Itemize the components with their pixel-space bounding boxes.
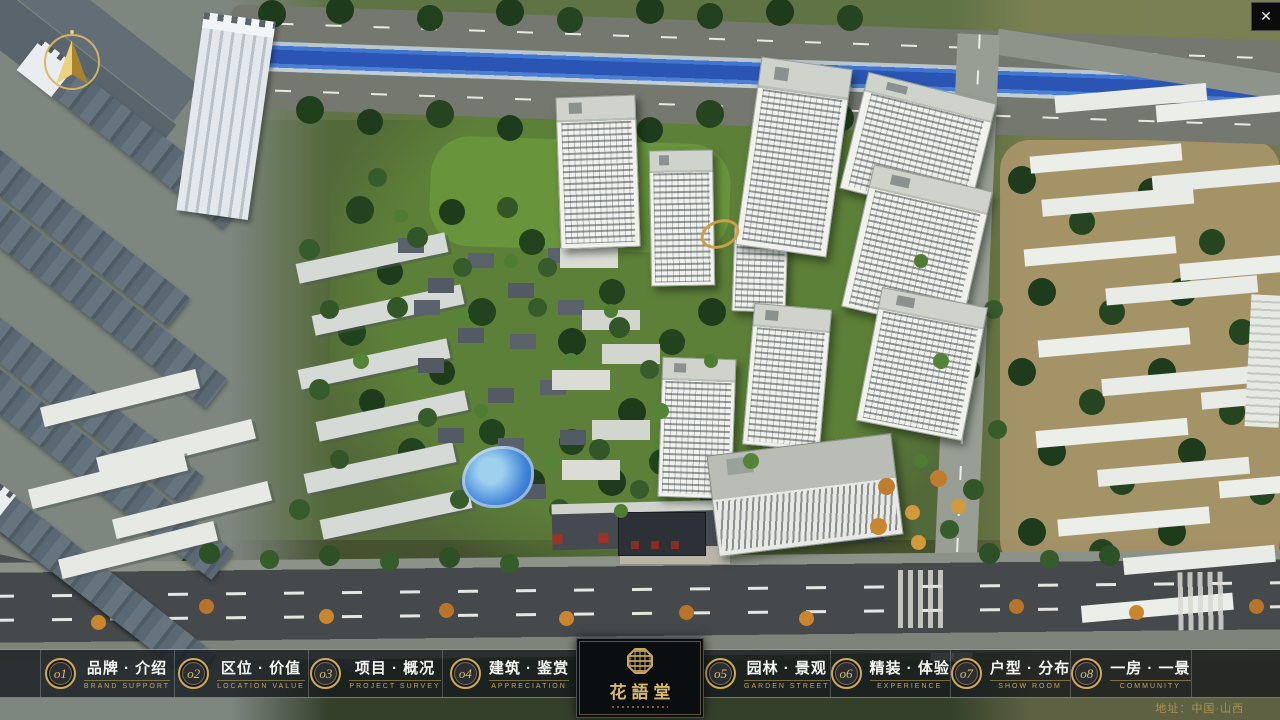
nav-badge-icon: o2 bbox=[178, 658, 209, 689]
nav-item-garden-landscape[interactable]: o5 园林 · 景观 GARDEN STREET bbox=[705, 650, 831, 697]
nav-item-room-view[interactable]: o8 一房 · 一景 COMMUNITY bbox=[1071, 650, 1191, 697]
nav-sublabel: SHOW ROOM bbox=[990, 680, 1070, 690]
nav-badge-icon: o7 bbox=[951, 658, 982, 689]
nav-badge-icon: o6 bbox=[831, 658, 862, 689]
nav-label: 精装 · 体验 bbox=[870, 657, 950, 678]
nav-item-location-value[interactable]: o2 区位 · 价值 LOCATION VALUE bbox=[175, 650, 309, 697]
nav-label: 园林 · 景观 bbox=[747, 657, 827, 678]
nav-badge-icon: o3 bbox=[310, 658, 341, 689]
nav-sublabel: EXPERIENCE bbox=[870, 680, 950, 690]
entrance-gate-building bbox=[618, 512, 706, 556]
nav-text: 项目 · 概况 PROJECT SURVEY bbox=[349, 657, 440, 690]
nav-group-left: o1 品牌 · 介绍 BRAND SUPPORT o2 区位 · 价值 LOCA… bbox=[40, 650, 577, 697]
nav-sublabel: COMMUNITY bbox=[1110, 680, 1190, 690]
nav-label: 品牌 · 介绍 bbox=[87, 657, 167, 678]
brand-subtitle-line bbox=[612, 706, 668, 708]
nav-sublabel: LOCATION VALUE bbox=[217, 680, 305, 690]
nav-text: 品牌 · 介绍 BRAND SUPPORT bbox=[84, 657, 170, 690]
courtyard-villas bbox=[398, 238, 424, 253]
nav-label: 户型 · 分布 bbox=[990, 657, 1070, 678]
compass-north-dot-icon bbox=[70, 30, 74, 34]
nav-item-floorplan-distribution[interactable]: o7 户型 · 分布 SHOW ROOM bbox=[951, 650, 1071, 697]
residential-tower bbox=[742, 303, 832, 451]
nav-text: 园林 · 景观 GARDEN STREET bbox=[744, 657, 830, 690]
close-icon: ✕ bbox=[1260, 8, 1272, 24]
brand-seal-pattern-icon bbox=[629, 650, 651, 672]
residential-tower bbox=[649, 149, 715, 286]
nav-text: 一房 · 一景 COMMUNITY bbox=[1110, 657, 1190, 690]
brand-logo-panel[interactable]: 花語堂 bbox=[576, 638, 704, 718]
nav-group-right: o5 园林 · 景观 GARDEN STREET o6 精装 · 体验 EXPE… bbox=[705, 650, 1121, 697]
brand-title: 花語堂 bbox=[605, 678, 676, 703]
sales-presentation-window: ✕ o1 品牌 · 介绍 BRAND SUPPORT o2 区位 · 价值 LO… bbox=[0, 0, 1280, 720]
nav-sublabel: PROJECT SURVEY bbox=[349, 680, 440, 690]
nav-badge-icon: o8 bbox=[1071, 658, 1102, 689]
east-edge-tower bbox=[1245, 294, 1280, 428]
nav-badge-icon: o4 bbox=[450, 658, 481, 689]
nav-item-architecture[interactable]: o4 建筑 · 鉴赏 APPRECIATION bbox=[443, 650, 577, 697]
nav-sublabel: APPRECIATION bbox=[489, 680, 569, 690]
compass-north-indicator[interactable] bbox=[40, 30, 104, 94]
nav-label: 项目 · 概况 bbox=[355, 657, 435, 678]
nav-item-decoration-experience[interactable]: o6 精装 · 体验 EXPERIENCE bbox=[831, 650, 951, 697]
close-button[interactable]: ✕ bbox=[1251, 2, 1280, 31]
nav-badge-icon: o5 bbox=[705, 658, 736, 689]
crosswalk bbox=[1177, 572, 1226, 631]
residential-tower bbox=[555, 95, 640, 250]
low-rise-blocks bbox=[560, 248, 618, 268]
nav-item-project-survey[interactable]: o3 项目 · 概况 PROJECT SURVEY bbox=[309, 650, 443, 697]
nav-sublabel: BRAND SUPPORT bbox=[84, 680, 170, 690]
autumn-tree-cluster bbox=[0, 0, 13, 13]
address-label: 地址：中国·山西 bbox=[1155, 700, 1244, 716]
nav-text: 户型 · 分布 SHOW ROOM bbox=[990, 657, 1070, 690]
nav-text: 建筑 · 鉴赏 APPRECIATION bbox=[489, 657, 569, 690]
brand-seal-icon bbox=[627, 648, 653, 674]
nav-text: 区位 · 价值 LOCATION VALUE bbox=[217, 657, 305, 690]
nav-text: 精装 · 体验 EXPERIENCE bbox=[870, 657, 950, 690]
east-district-ground bbox=[1000, 140, 1280, 570]
nav-item-brand-intro[interactable]: o1 品牌 · 介绍 BRAND SUPPORT bbox=[41, 650, 175, 697]
nav-label: 一房 · 一景 bbox=[1110, 657, 1190, 678]
nav-label: 区位 · 价值 bbox=[221, 657, 301, 678]
nav-label: 建筑 · 鉴赏 bbox=[489, 657, 569, 678]
nav-badge-icon: o1 bbox=[45, 658, 76, 689]
nav-sublabel: GARDEN STREET bbox=[744, 680, 830, 690]
crosswalk bbox=[898, 570, 946, 628]
